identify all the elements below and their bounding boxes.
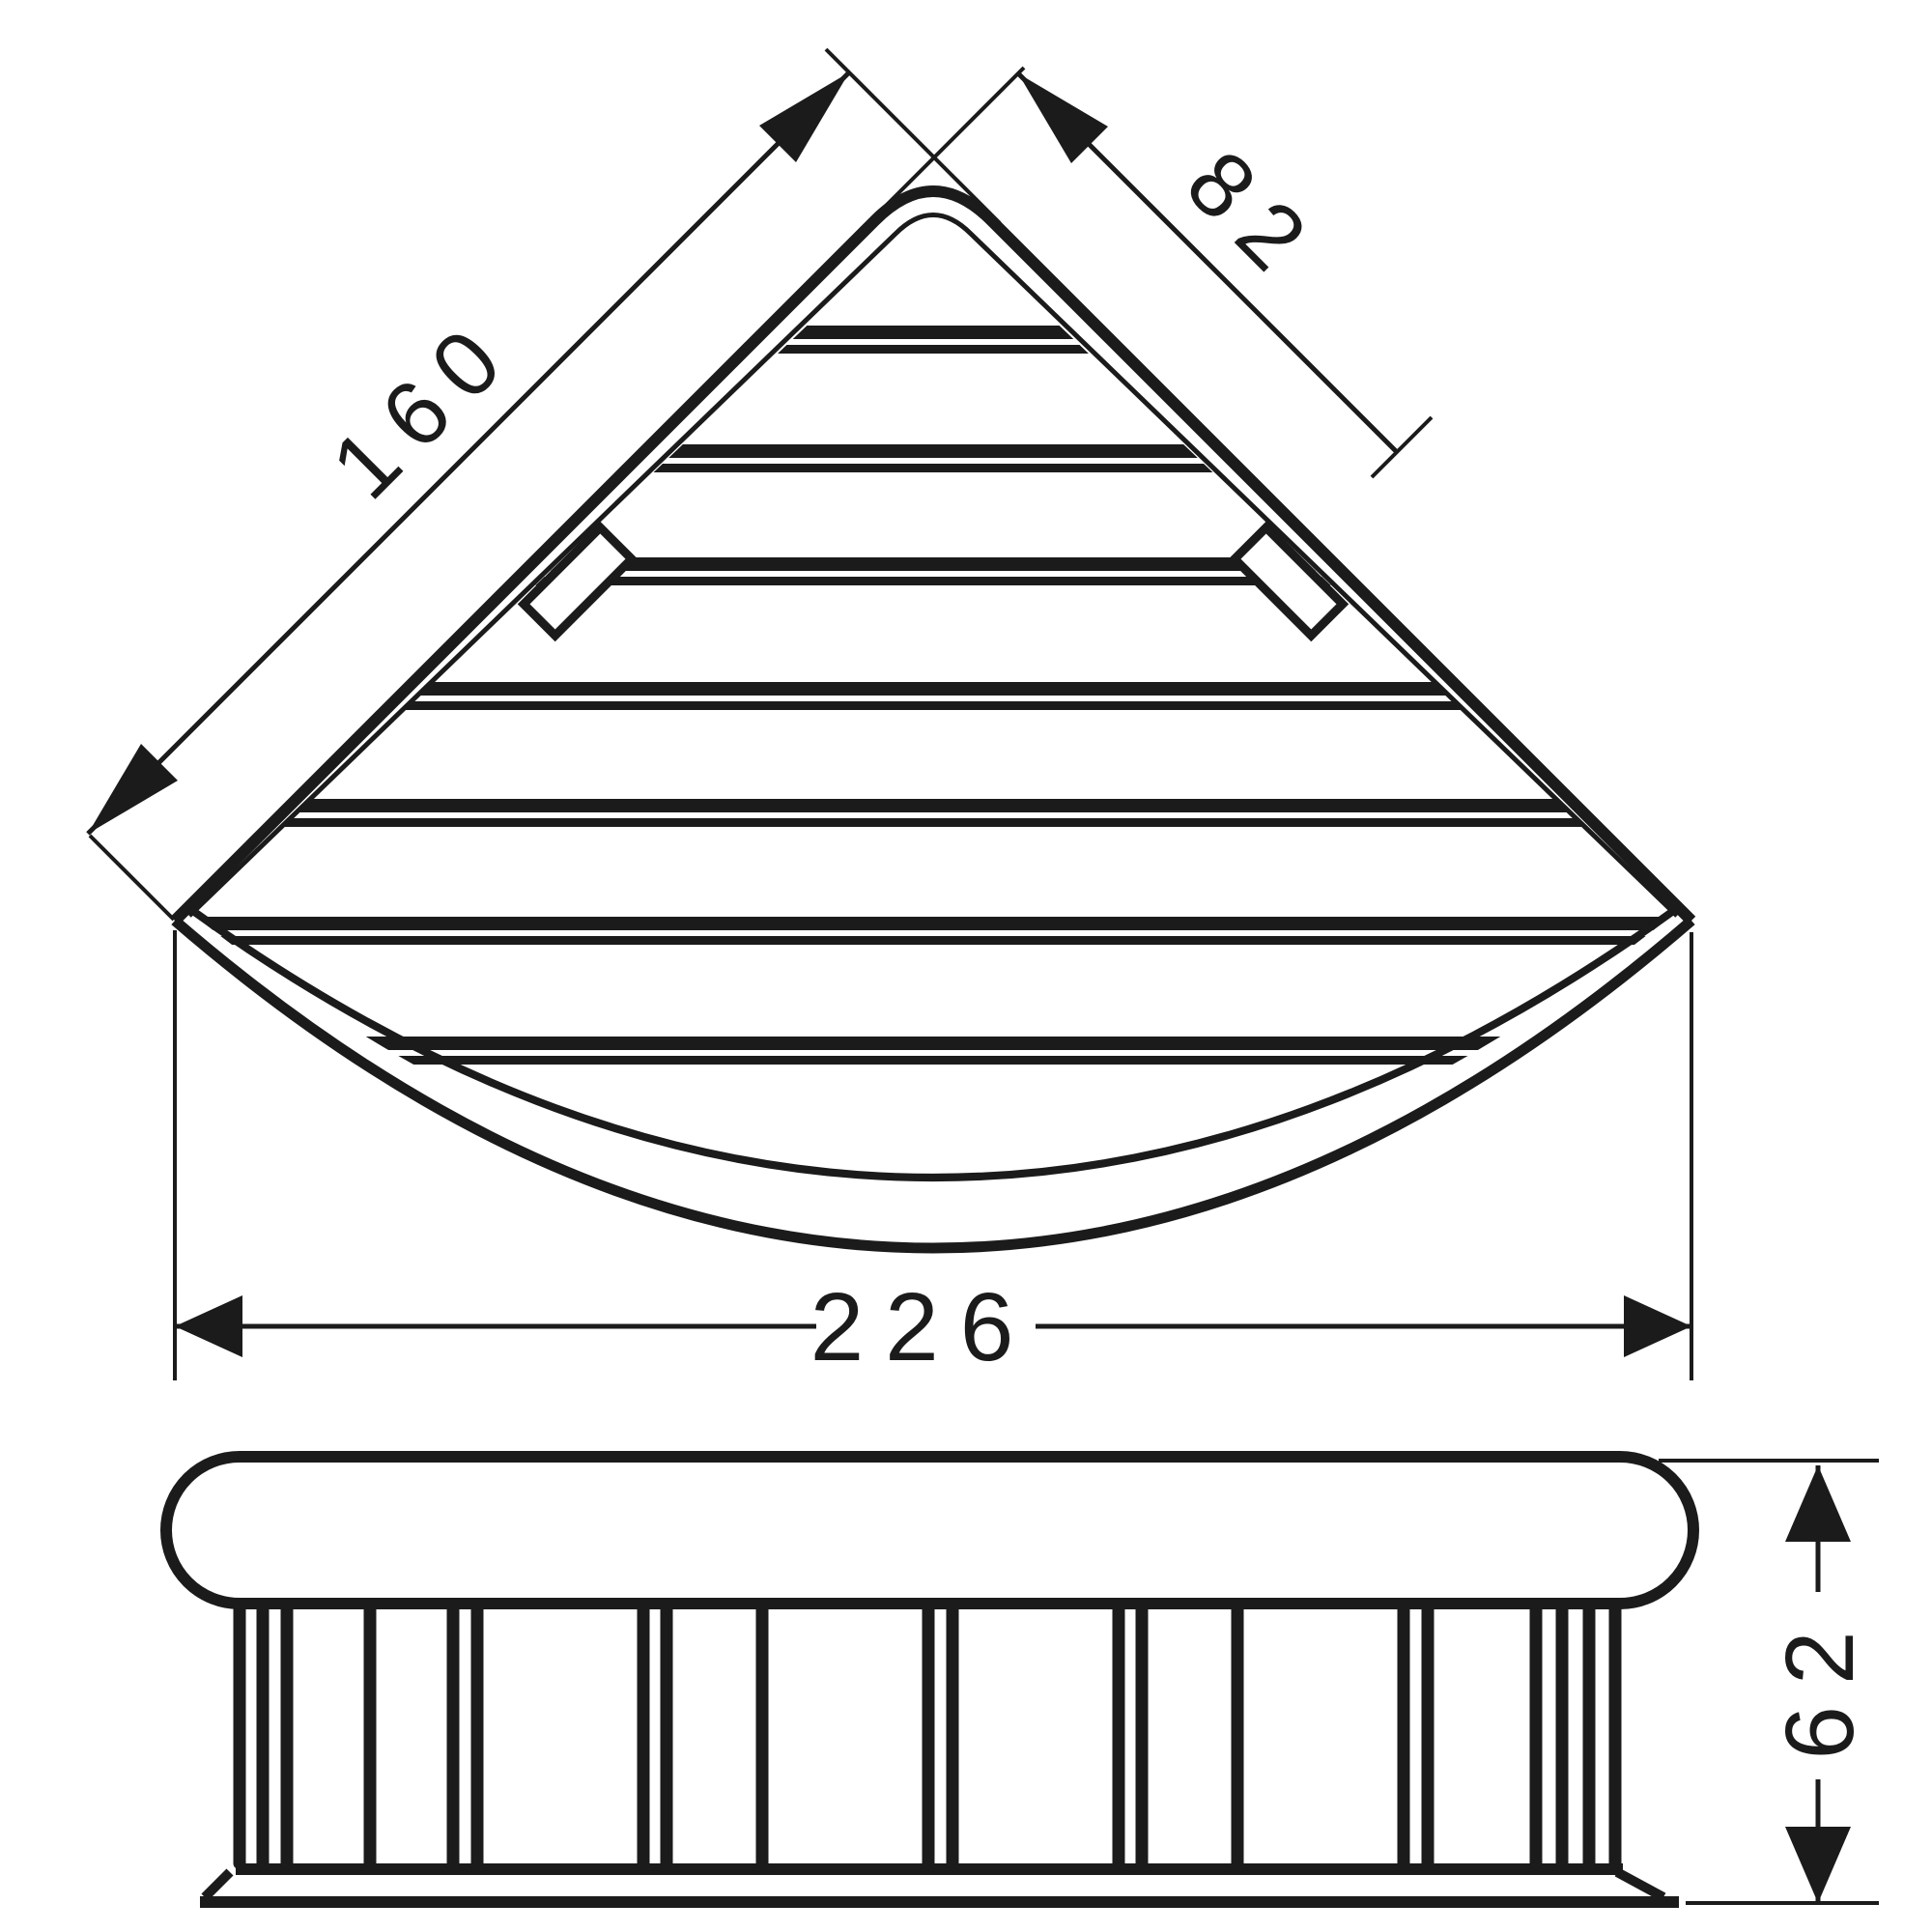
slat-13 xyxy=(1136,1596,1149,1869)
technical-drawing-page: 160 82 226 62 xyxy=(0,0,1932,1932)
arrowhead-226-left xyxy=(175,1295,242,1357)
basket-slats xyxy=(234,1596,1622,1869)
slat-20 xyxy=(1609,1596,1622,1869)
top-view xyxy=(135,191,1729,1248)
side-view xyxy=(166,1457,1693,1902)
wire-row-1-shadow xyxy=(135,345,1729,354)
slat-11 xyxy=(947,1596,959,1869)
side-rail xyxy=(166,1457,1693,1604)
slat-10 xyxy=(923,1596,935,1869)
slat-7 xyxy=(638,1596,650,1869)
wire-row-7-bar xyxy=(135,1037,1729,1050)
slat-18 xyxy=(1556,1596,1569,1869)
dim-label-160: 160 xyxy=(312,297,533,518)
wire-row-6-bar xyxy=(135,917,1729,930)
wire-row-3-bar xyxy=(135,557,1729,571)
slat-9 xyxy=(756,1596,769,1869)
wire-row-5-bar xyxy=(135,799,1729,812)
arrowhead-62-bottom xyxy=(1785,1827,1851,1903)
slat-19 xyxy=(1583,1596,1596,1869)
bottom-rim-right-connector xyxy=(1617,1872,1663,1897)
wire-row-1-bar xyxy=(135,326,1729,339)
dimension-overall-width: 226 xyxy=(175,930,1691,1381)
wire-row-3-shadow xyxy=(135,577,1729,585)
front-rim-outer-arc xyxy=(175,921,1691,1248)
bottom-rim-left-connector xyxy=(205,1872,230,1897)
arrowhead-62-top xyxy=(1785,1465,1851,1542)
extension-line-right-clip xyxy=(1372,417,1432,477)
arrowhead-226-right xyxy=(1624,1295,1691,1357)
slat-17 xyxy=(1530,1596,1543,1869)
slat-12 xyxy=(1113,1596,1125,1869)
wire-row-6-shadow xyxy=(135,936,1729,945)
slat-14 xyxy=(1232,1596,1244,1869)
dim-label-226: 226 xyxy=(810,1273,1036,1381)
extension-line-apex-b xyxy=(865,68,1024,227)
slat-4 xyxy=(364,1596,377,1869)
dim-label-82: 82 xyxy=(1167,131,1339,303)
slat-3 xyxy=(281,1596,294,1869)
slat-16 xyxy=(1422,1596,1435,1869)
slat-8 xyxy=(661,1596,673,1869)
slat-2 xyxy=(257,1596,270,1869)
wire-row-4-shadow xyxy=(135,701,1729,710)
wire-row-5-shadow xyxy=(135,818,1729,827)
slat-6 xyxy=(471,1596,484,1869)
dimension-diagonal-right: 82 xyxy=(865,68,1432,477)
corner-basket-drawing: 160 82 226 62 xyxy=(0,0,1932,1932)
slat-15 xyxy=(1398,1596,1410,1869)
dimension-diagonal-left: 160 xyxy=(88,49,1000,920)
dim-label-62: 62 xyxy=(1766,1609,1874,1759)
wire-row-4-bar xyxy=(135,682,1729,696)
extension-line-left-tip xyxy=(90,836,174,920)
slat-1 xyxy=(234,1596,246,1869)
wire-row-7-shadow xyxy=(135,1056,1729,1065)
slat-5 xyxy=(447,1596,460,1869)
